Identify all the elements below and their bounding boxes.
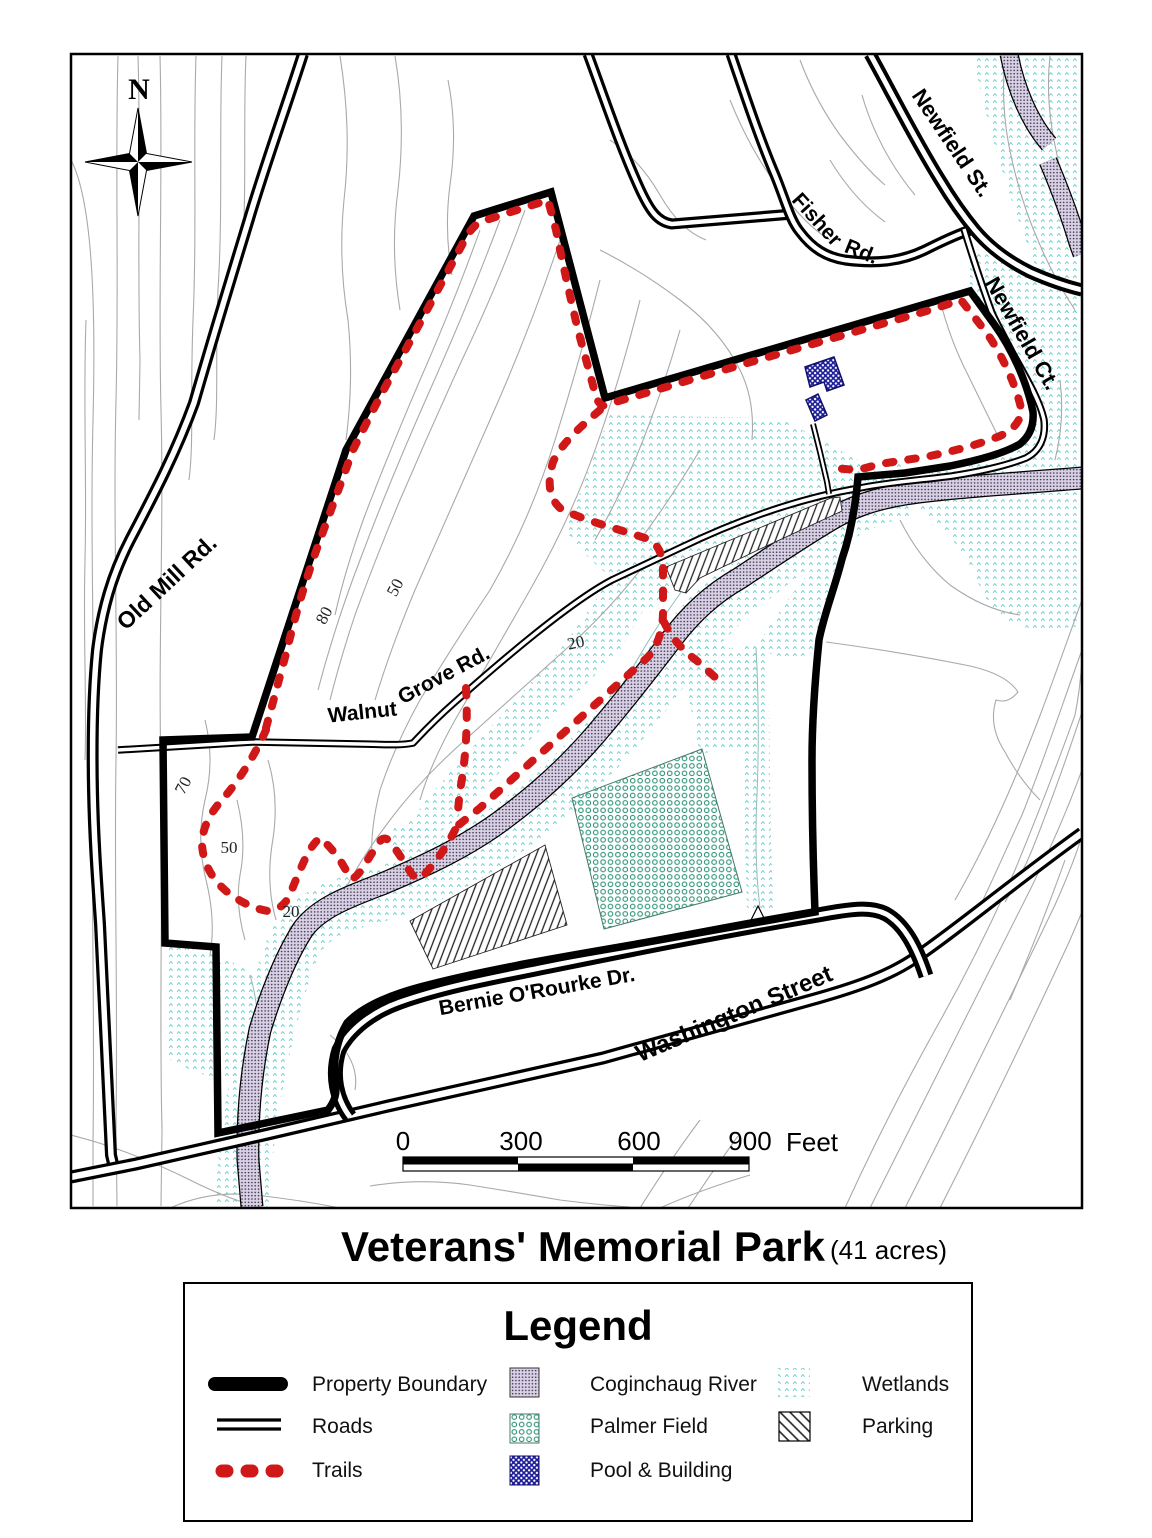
svg-text:Pool & Building: Pool & Building [590, 1459, 732, 1482]
svg-text:Legend: Legend [503, 1302, 652, 1349]
svg-text:0: 0 [396, 1126, 410, 1156]
svg-text:(41 acres): (41 acres) [830, 1235, 947, 1265]
svg-text:20: 20 [283, 902, 300, 921]
svg-text:Property Boundary: Property Boundary [312, 1373, 488, 1396]
svg-text:900: 900 [728, 1126, 771, 1156]
svg-text:Wetlands: Wetlands [862, 1373, 949, 1396]
svg-text:300: 300 [499, 1126, 542, 1156]
svg-text:Palmer Field: Palmer Field [590, 1415, 708, 1438]
svg-text:Coginchaug River: Coginchaug River [590, 1373, 757, 1396]
svg-text:50: 50 [221, 838, 238, 857]
svg-text:Parking: Parking [862, 1415, 933, 1438]
svg-text:Feet: Feet [786, 1127, 839, 1157]
svg-text:N: N [128, 73, 150, 106]
svg-text:Veterans' Memorial Park: Veterans' Memorial Park [341, 1223, 826, 1270]
svg-text:Trails: Trails [312, 1459, 363, 1482]
svg-text:600: 600 [617, 1126, 660, 1156]
svg-text:Roads: Roads [312, 1415, 373, 1438]
